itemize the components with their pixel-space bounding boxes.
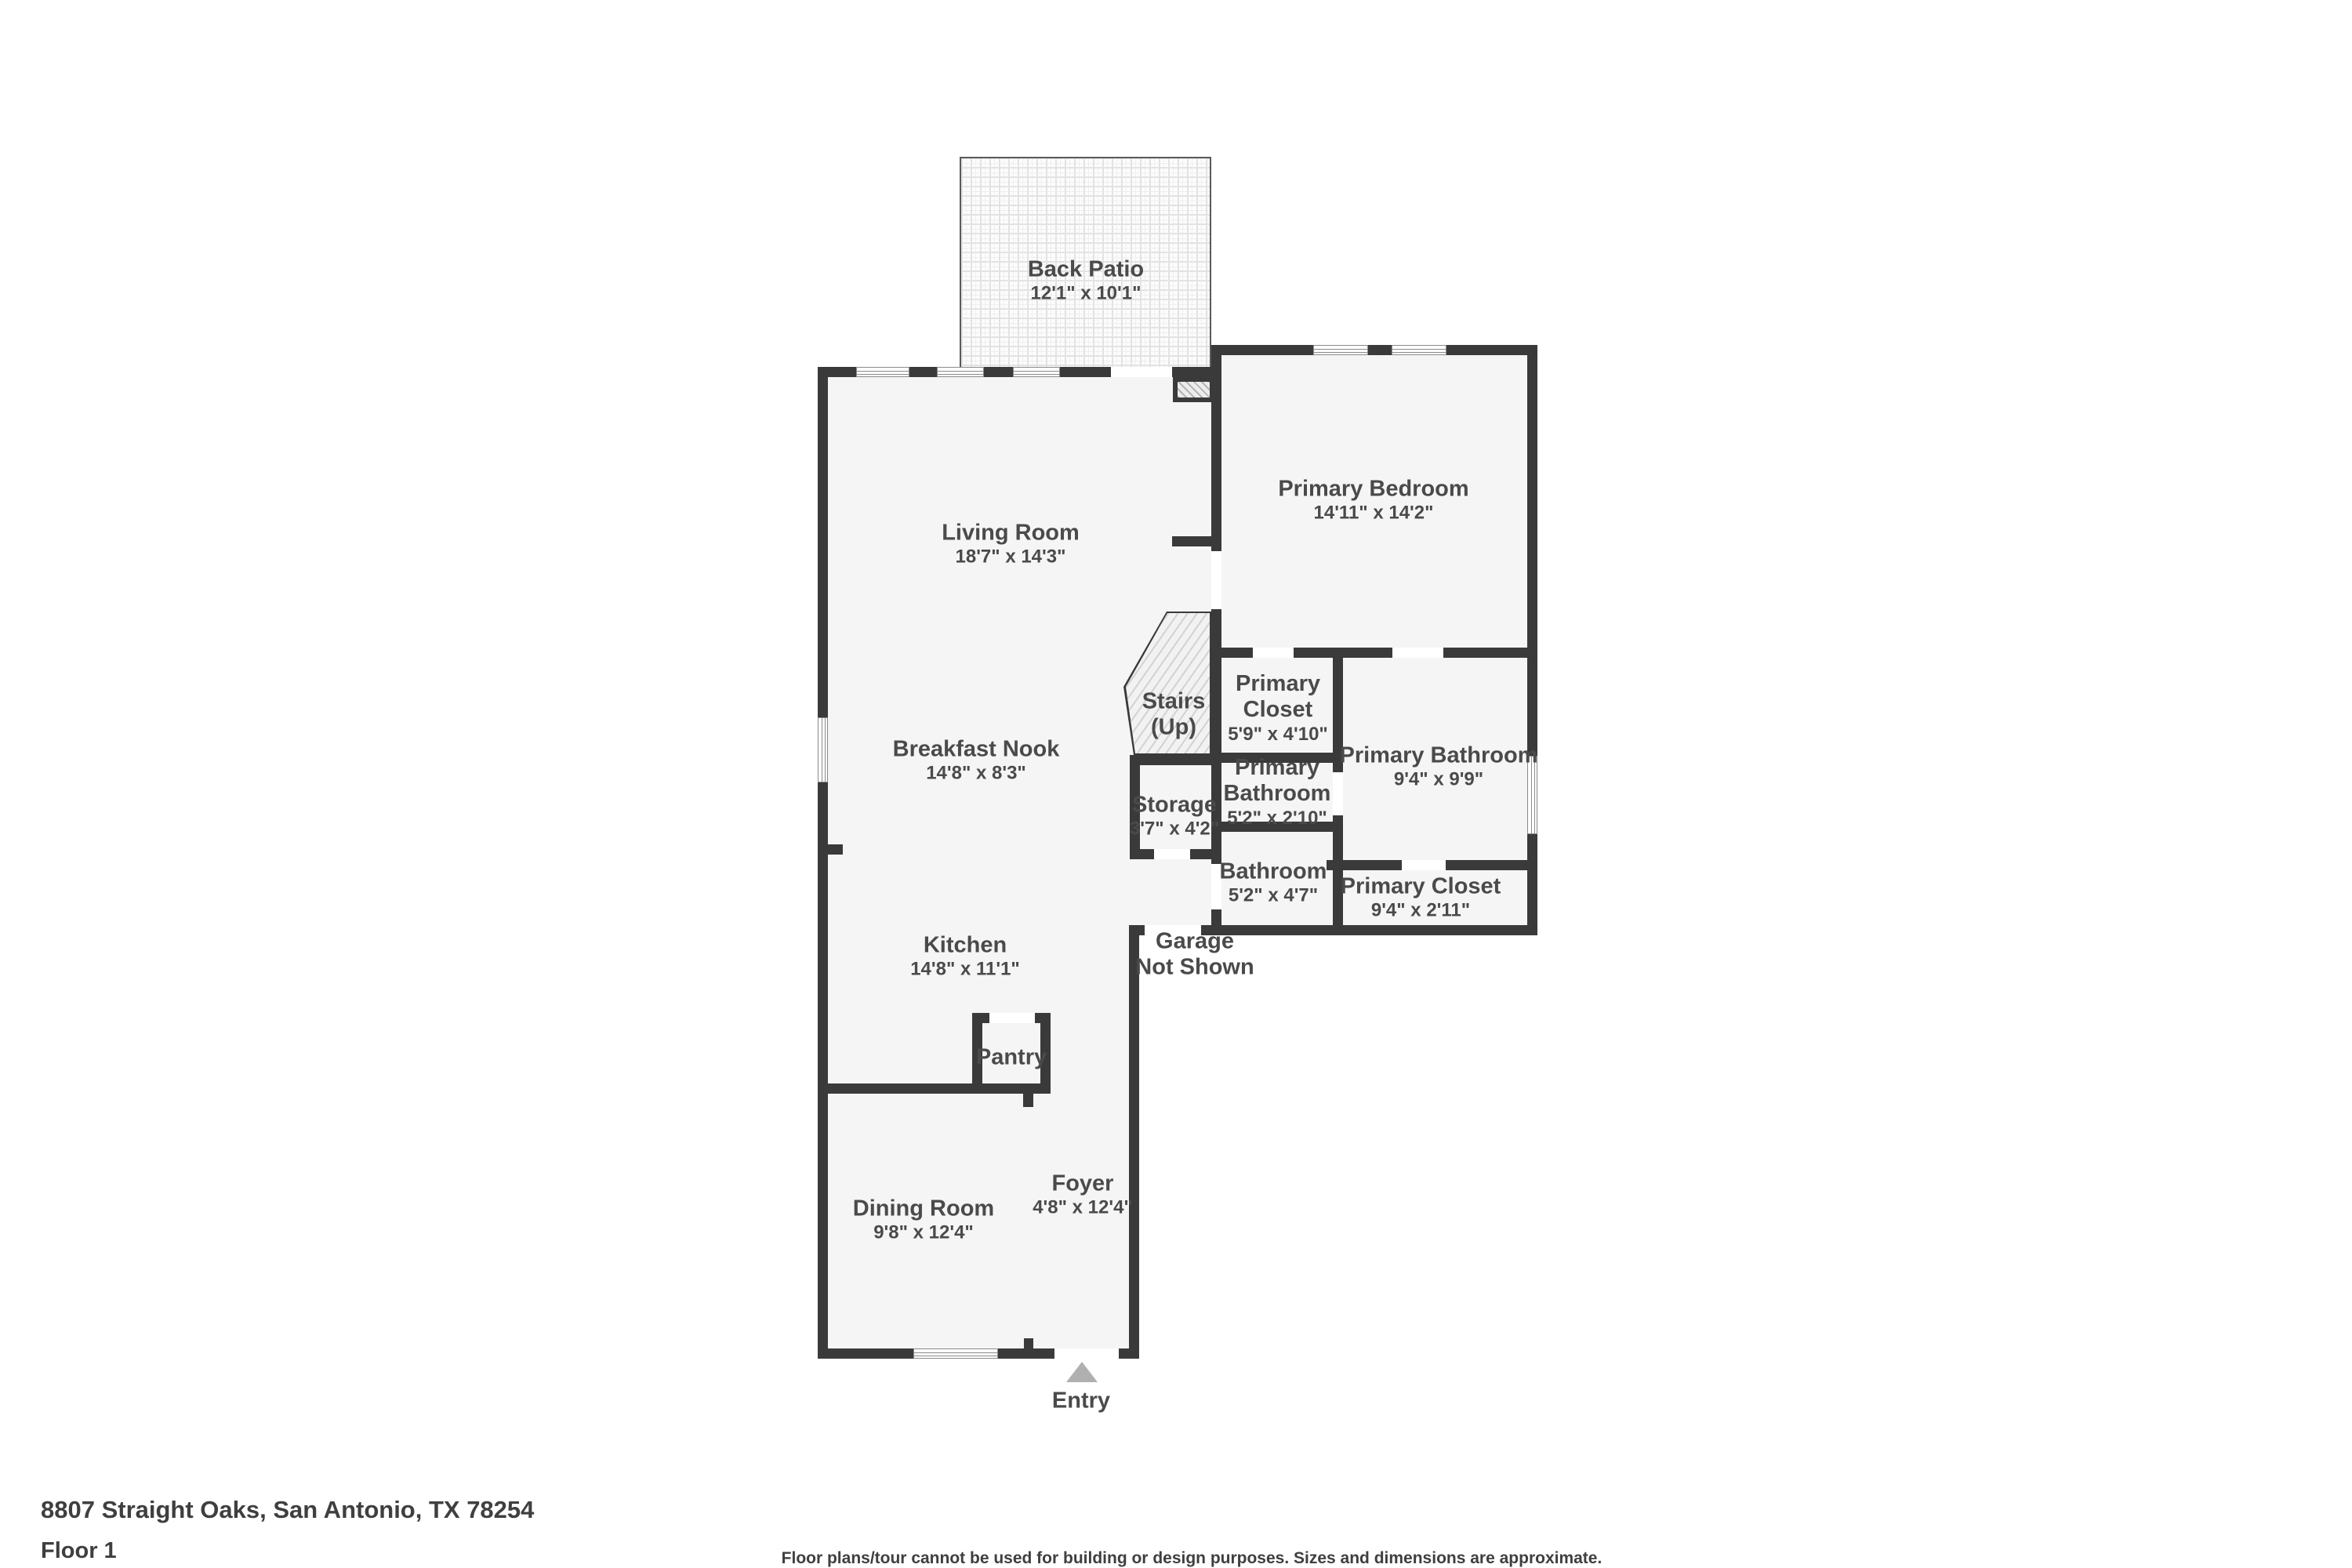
room-name: Primary Closet [1219, 671, 1337, 724]
wall-segment [1527, 345, 1537, 935]
room-dims: 9'8" x 12'4" [814, 1222, 1033, 1244]
floor-plan-page: Back Patio 12'1" x 10'1" Living Room 18'… [0, 0, 2352, 1568]
room-name: Breakfast Nook [851, 737, 1102, 763]
door-opening [1154, 849, 1190, 859]
room-name: Dining Room [814, 1196, 1033, 1222]
room-dims: Not Shown [1116, 955, 1273, 981]
door-opening [1392, 648, 1443, 658]
window [1013, 367, 1060, 377]
room-label-primary-closet-lower: Primary Closet 9'4" x 2'11" [1303, 874, 1538, 922]
room-label-primary-bathroom-large: Primary Bathroom 9'4" x 9'9" [1309, 743, 1568, 791]
door-opening [1253, 648, 1294, 658]
room-dims: 14'8" x 8'3" [851, 763, 1102, 785]
room-label-pantry: Pantry [956, 1044, 1066, 1070]
wall-segment [818, 1083, 982, 1094]
room-label-garage: Garage Not Shown [1116, 929, 1273, 982]
room-name: Pantry [956, 1044, 1066, 1070]
wall-segment [1130, 755, 1221, 765]
door-opening [1211, 551, 1221, 609]
entry-arrow-icon [1066, 1362, 1098, 1382]
pantry-door-opening [989, 1013, 1035, 1023]
room-name: Living Room [893, 521, 1128, 546]
room-name: Foyer [996, 1171, 1169, 1197]
room-label-breakfast-nook: Breakfast Nook 14'8" x 8'3" [851, 737, 1102, 785]
room-dims: 12'1" x 10'1" [984, 283, 1188, 305]
room-name: Garage [1116, 929, 1273, 955]
window [1313, 345, 1368, 355]
room-label-dining-room: Dining Room 9'8" x 12'4" [814, 1196, 1033, 1244]
room-label-back-patio: Back Patio 12'1" x 10'1" [984, 257, 1188, 305]
lower-wing-floor [828, 935, 1129, 1348]
room-dims: 5'9" x 4'10" [1219, 724, 1337, 746]
room-dims: 9'4" x 2'11" [1303, 900, 1538, 922]
room-label-primary-closet-upper: Primary Closet 5'9" x 4'10" [1219, 671, 1337, 745]
wall-segment [1211, 345, 1537, 355]
window [856, 367, 909, 377]
entry-door-opening [1054, 1348, 1119, 1359]
room-name: Primary Bathroom [1214, 755, 1340, 808]
wall-segment [1024, 1338, 1033, 1348]
window [937, 367, 984, 377]
floor-label: Floor 1 [41, 1538, 117, 1564]
wall-segment [1129, 925, 1139, 1359]
wall-segment [818, 844, 843, 855]
wall-segment [1023, 1094, 1033, 1107]
room-label-kitchen: Kitchen 14'8" x 11'1" [863, 933, 1067, 981]
room-label-primary-bathroom-small: Primary Bathroom 5'2" x 2'10" [1214, 755, 1340, 829]
room-dims: 18'7" x 14'3" [893, 546, 1128, 568]
room-name: Kitchen [863, 933, 1067, 959]
patio-door-opening [1111, 367, 1172, 377]
room-label-stairs: Stairs (Up) [1123, 689, 1225, 742]
room-name: Primary Bedroom [1240, 477, 1507, 503]
fireplace [1173, 377, 1214, 402]
window [913, 1348, 998, 1359]
room-name: Primary Closet [1303, 874, 1538, 900]
room-dims: 14'11" x 14'2" [1240, 503, 1507, 524]
room-dims: 9'4" x 9'9" [1309, 769, 1568, 791]
window [1392, 345, 1446, 355]
wall-segment [1172, 536, 1211, 546]
disclaimer-text: Floor plans/tour cannot be used for buil… [721, 1549, 1662, 1568]
room-name: Back Patio [984, 257, 1188, 283]
wall-segment [972, 1083, 1051, 1094]
entry-label: Entry [1034, 1388, 1128, 1414]
room-label-primary-bedroom: Primary Bedroom 14'11" x 14'2" [1240, 477, 1507, 524]
room-label-living-room: Living Room 18'7" x 14'3" [893, 521, 1128, 568]
room-dims: (Up) [1123, 715, 1225, 741]
window [818, 717, 828, 782]
room-dims: 5'2" x 2'10" [1214, 808, 1340, 829]
door-opening [1402, 860, 1446, 870]
wall-segment [1211, 345, 1221, 551]
room-name: Entry [1034, 1388, 1128, 1414]
property-address: 8807 Straight Oaks, San Antonio, TX 7825… [41, 1496, 534, 1524]
room-name: Primary Bathroom [1309, 743, 1568, 769]
room-name: Stairs [1123, 689, 1225, 715]
room-dims: 14'8" x 11'1" [863, 959, 1067, 981]
